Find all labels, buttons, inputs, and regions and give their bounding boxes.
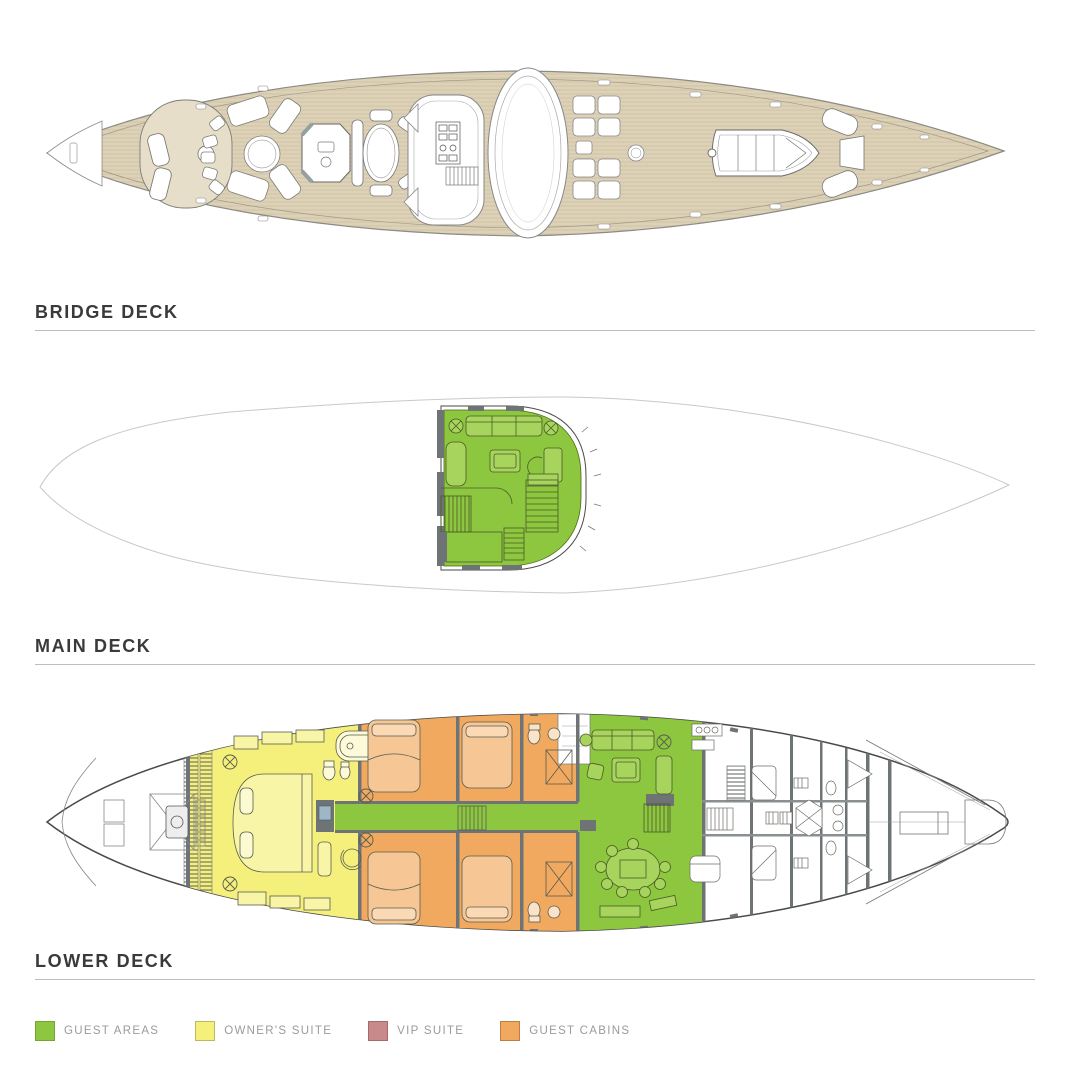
salon-sofa xyxy=(592,730,654,750)
owners-suite-label: OWNER'S SUITE xyxy=(224,1025,332,1037)
console-grid xyxy=(436,122,460,164)
helm-pod xyxy=(302,124,350,182)
deck-hatch xyxy=(628,145,644,161)
yacht-deck-plans-page: BRIDGE DECK MAIN DECK LOWER DECK GUEST A… xyxy=(0,0,1069,1080)
bench xyxy=(318,842,331,876)
guest-areas-swatch xyxy=(35,1021,55,1041)
guest-cabins-swatch xyxy=(500,1021,520,1041)
armchair xyxy=(586,763,604,781)
salon-sofa xyxy=(466,416,542,436)
lower-deck-label: LOWER DECK xyxy=(35,951,1035,980)
companionway-stairs xyxy=(446,167,478,185)
crew-bunk xyxy=(752,846,776,880)
legend-item-vip-suite: VIP SUITE xyxy=(368,1021,464,1041)
pilothouse xyxy=(404,95,484,225)
main-deck-plan xyxy=(0,380,1069,620)
owners-suite-swatch xyxy=(195,1021,215,1041)
sideboard xyxy=(600,906,640,917)
guest-corridor xyxy=(335,804,578,832)
toilet xyxy=(528,728,540,744)
dinette-bench xyxy=(352,120,363,186)
crew-bunk xyxy=(752,766,776,800)
vanity-sink xyxy=(319,806,331,820)
legend: GUEST AREAS OWNER'S SUITE VIP SUITE GUES… xyxy=(35,1021,630,1041)
lower-deck-plan xyxy=(0,700,1069,950)
wardrobe-lockers xyxy=(200,732,212,912)
legend-item-guest-areas: GUEST AREAS xyxy=(35,1021,159,1041)
sink xyxy=(833,805,843,815)
crew-sofa xyxy=(690,856,720,882)
bridge-deck-plan xyxy=(0,40,1069,280)
coffee-table xyxy=(490,450,520,472)
bridge-deck-label: BRIDGE DECK xyxy=(35,302,1035,331)
dinette-table xyxy=(363,124,399,182)
sink xyxy=(548,728,560,740)
main-deck-label: MAIN DECK xyxy=(35,636,1035,665)
toilet xyxy=(826,781,836,795)
fore-hatch xyxy=(840,136,864,170)
guest-cabins-label: GUEST CABINS xyxy=(529,1025,630,1037)
vip-suite-label: VIP SUITE xyxy=(397,1025,464,1037)
swim-step xyxy=(70,143,77,163)
chaise xyxy=(446,442,466,486)
vip-suite-swatch xyxy=(368,1021,388,1041)
legend-item-owners-suite: OWNER'S SUITE xyxy=(195,1021,332,1041)
crew-locker xyxy=(727,766,745,800)
guest-areas-label: GUEST AREAS xyxy=(64,1025,159,1037)
round-table xyxy=(244,136,280,172)
deckhouse-arch xyxy=(488,68,568,238)
legend-item-guest-cabins: GUEST CABINS xyxy=(500,1021,630,1041)
